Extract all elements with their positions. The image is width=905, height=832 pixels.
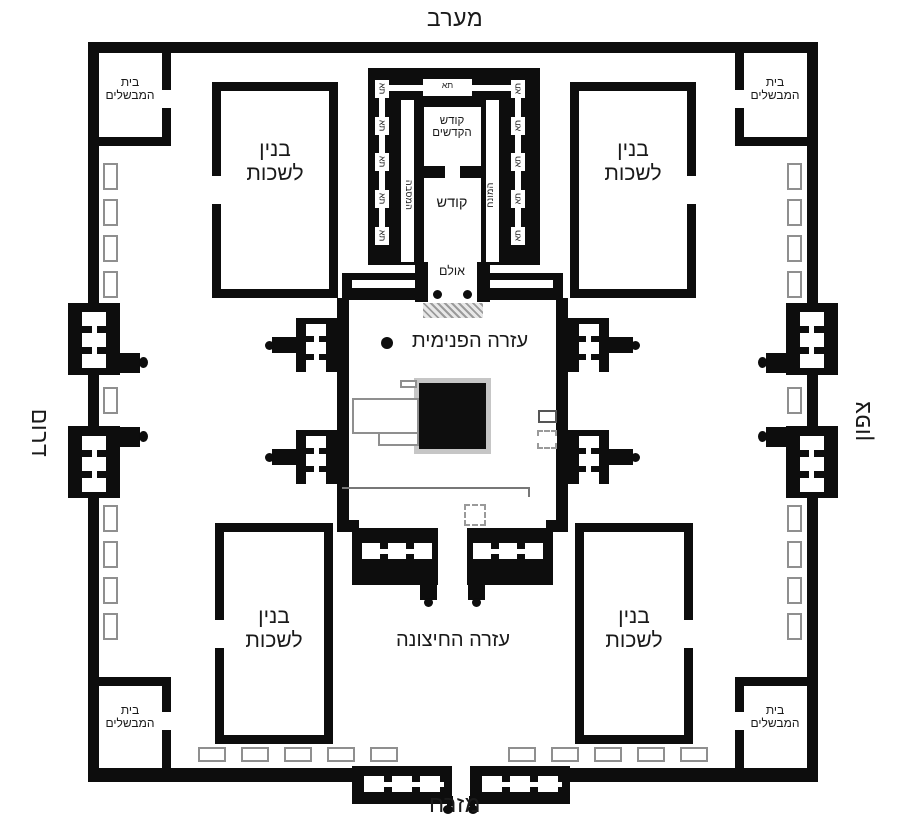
bld-sw-wall bbox=[215, 648, 224, 744]
wall-chamber bbox=[594, 747, 622, 762]
bld-nw-wall bbox=[329, 82, 338, 298]
porch-wing-slot bbox=[352, 280, 415, 288]
gate-passage bbox=[809, 316, 814, 368]
outer-wall-south bbox=[88, 42, 99, 782]
gate-knob bbox=[631, 453, 640, 462]
cook-nw-wall bbox=[99, 137, 171, 146]
wall-chamber bbox=[241, 747, 269, 762]
gate-knob bbox=[265, 453, 274, 462]
altar-ramp bbox=[352, 398, 419, 434]
wall-chamber bbox=[508, 747, 536, 762]
bld-se-wall bbox=[684, 648, 693, 744]
pillar bbox=[463, 290, 472, 299]
wall-chamber bbox=[103, 505, 118, 532]
outer-wall-west bbox=[88, 42, 818, 53]
cell-label: תא bbox=[513, 118, 522, 134]
wall-chamber bbox=[103, 235, 118, 262]
chambers-building-line1: בנין bbox=[574, 605, 694, 629]
court-marker bbox=[464, 504, 486, 526]
wall-chamber bbox=[787, 505, 802, 532]
cooking-house-line1: בית bbox=[745, 704, 805, 717]
bld-sw-wall bbox=[215, 523, 333, 532]
wall-chamber bbox=[787, 199, 802, 226]
bld-nw-wall bbox=[212, 289, 338, 298]
cell-label: תא bbox=[377, 228, 386, 244]
gate-knob bbox=[139, 357, 148, 368]
wall-chamber bbox=[787, 387, 802, 414]
inner-court-bullet bbox=[381, 337, 393, 349]
altar-ledge bbox=[400, 380, 417, 388]
wall-chamber bbox=[787, 163, 802, 190]
inner-court-wall bbox=[556, 484, 568, 532]
wall-chamber bbox=[787, 541, 802, 568]
bld-ne-wall bbox=[570, 289, 696, 298]
direction-north-label: צפון bbox=[850, 392, 876, 450]
outer-gate-foot bbox=[766, 353, 786, 373]
gate-passage bbox=[473, 549, 543, 554]
chambers-building-label-se: בנין לשכות bbox=[574, 605, 694, 653]
inner-gate-stub bbox=[272, 337, 296, 353]
pillar bbox=[433, 290, 442, 299]
bld-se-wall bbox=[575, 735, 693, 744]
holy-label: קודש bbox=[420, 196, 484, 212]
inner-gate-stub bbox=[609, 449, 633, 465]
bld-ne-wall bbox=[570, 82, 696, 91]
chambers-building-line1: בנין bbox=[215, 138, 335, 162]
altar bbox=[414, 378, 491, 454]
wall-chamber bbox=[103, 163, 118, 190]
wall-chamber bbox=[103, 577, 118, 604]
outer-gate-foot bbox=[120, 353, 140, 373]
gate-passage bbox=[314, 326, 319, 372]
holy-of-holies-line1: קודש bbox=[420, 115, 484, 127]
inner-gate-stub bbox=[272, 449, 296, 465]
gate-passage bbox=[362, 549, 432, 554]
chambers-building-line1: בנין bbox=[214, 605, 334, 629]
cell-label: תא bbox=[377, 81, 386, 97]
cooking-house-label-sw: בית המבשלים bbox=[100, 704, 160, 730]
cook-se-wall bbox=[735, 730, 744, 769]
chambers-building-line2: לשכות bbox=[573, 162, 693, 186]
sanctuary-steps bbox=[423, 303, 483, 318]
inner-court-wall bbox=[556, 372, 568, 430]
bld-nw-wall bbox=[212, 82, 338, 91]
cell-label: תא bbox=[377, 191, 386, 207]
wall-chamber bbox=[103, 199, 118, 226]
cooking-house-label-nw: בית המבשלים bbox=[100, 76, 160, 102]
bld-sw-wall bbox=[215, 735, 333, 744]
gate-knob bbox=[424, 598, 433, 607]
cook-sw-wall bbox=[162, 730, 171, 769]
gate-passage bbox=[809, 440, 814, 492]
outer-wall-north bbox=[807, 42, 818, 782]
cell-label-top: תא bbox=[423, 81, 472, 90]
wall-chamber bbox=[787, 271, 802, 298]
cooking-house-line2: המבשלים bbox=[745, 89, 805, 102]
gate-passage bbox=[586, 438, 591, 484]
court-divider-line bbox=[342, 487, 530, 489]
court-divider-line bbox=[528, 487, 530, 497]
cell-label: תא bbox=[513, 81, 522, 97]
cell-label: תא bbox=[513, 191, 522, 207]
wall-chamber bbox=[637, 747, 665, 762]
wall-chamber bbox=[787, 235, 802, 262]
wall-chamber bbox=[787, 613, 802, 640]
outer-court-label: עזרה החיצונה bbox=[373, 630, 533, 652]
cooking-house-label-se: בית המבשלים bbox=[745, 704, 805, 730]
gate-knob bbox=[139, 431, 148, 442]
wall-chamber bbox=[103, 271, 118, 298]
wall-chamber bbox=[198, 747, 226, 762]
cell-label: תא bbox=[513, 228, 522, 244]
wall-chamber bbox=[103, 613, 118, 640]
chambers-building-label-nw: בנין לשכות bbox=[215, 138, 335, 186]
winding-passage-label: המסבה bbox=[401, 165, 413, 225]
inner-court-label: עזרה הפנימית bbox=[395, 331, 545, 353]
outer-gate-foot bbox=[120, 427, 140, 447]
cell-label: תא bbox=[377, 154, 386, 170]
cooking-house-line1: בית bbox=[100, 76, 160, 89]
chambers-building-line2: לשכות bbox=[215, 162, 335, 186]
gate-passage bbox=[586, 326, 591, 372]
laver bbox=[538, 410, 557, 423]
wall-chamber bbox=[370, 747, 398, 762]
inner-gate-stub bbox=[609, 337, 633, 353]
direction-west-label: מערב bbox=[400, 6, 510, 31]
chambers-building-line2: לשכות bbox=[574, 629, 694, 653]
cooking-house-line1: בית bbox=[745, 76, 805, 89]
free-space-label: המונח bbox=[486, 165, 498, 225]
cook-sw-wall bbox=[99, 677, 171, 686]
wall-chamber bbox=[103, 387, 118, 414]
bld-ne-wall bbox=[687, 204, 696, 298]
cooking-house-line2: המבשלים bbox=[100, 89, 160, 102]
cooking-house-line2: המבשלים bbox=[745, 717, 805, 730]
gate-knob bbox=[758, 357, 767, 368]
gate-knob bbox=[265, 341, 274, 350]
gate-knob bbox=[631, 341, 640, 350]
wall-chamber bbox=[787, 577, 802, 604]
gate-passage bbox=[314, 438, 319, 484]
bld-se-wall bbox=[575, 523, 693, 532]
wall-chamber bbox=[680, 747, 708, 762]
gate-knob bbox=[472, 598, 481, 607]
inner-court-wall bbox=[337, 484, 349, 532]
gate-passage bbox=[368, 782, 444, 787]
bld-ne-wall bbox=[570, 82, 579, 298]
cook-nw-wall bbox=[162, 53, 171, 90]
bld-nw-wall bbox=[212, 204, 221, 298]
outer-gate-foot bbox=[766, 427, 786, 447]
gate-knob bbox=[758, 431, 767, 442]
inner-court-wall bbox=[337, 298, 349, 320]
cook-se-wall bbox=[735, 677, 807, 686]
temple-floor-plan: מערב מזרח דרום צפון בית המבשלים בית המבש… bbox=[0, 0, 905, 832]
wall-chamber bbox=[103, 541, 118, 568]
altar-ramp-step bbox=[378, 432, 419, 446]
cell-label: תא bbox=[377, 118, 386, 134]
chambers-building-label-ne: בנין לשכות bbox=[573, 138, 693, 186]
wall-chamber bbox=[284, 747, 312, 762]
cell-label: תא bbox=[513, 154, 522, 170]
direction-south-label: דרום bbox=[26, 404, 52, 462]
cooking-house-line1: בית bbox=[100, 704, 160, 717]
gate-passage bbox=[486, 782, 562, 787]
chambers-building-line1: בנין bbox=[573, 138, 693, 162]
inner-court-wall bbox=[556, 298, 568, 320]
chambers-building-label-sw: בנין לשכות bbox=[214, 605, 334, 653]
porch-label: אולם bbox=[424, 265, 480, 279]
cook-ne-wall bbox=[735, 53, 744, 90]
cooking-house-line2: המבשלים bbox=[100, 717, 160, 730]
wall-chamber bbox=[551, 747, 579, 762]
gate-passage bbox=[92, 440, 97, 492]
direction-east-label: מזרח bbox=[400, 792, 510, 817]
inner-court-wall bbox=[337, 372, 349, 430]
chambers-building-line2: לשכות bbox=[214, 629, 334, 653]
cook-ne-wall bbox=[735, 137, 807, 146]
gate-passage bbox=[92, 316, 97, 368]
holy-of-holies-line2: הקדשים bbox=[420, 127, 484, 139]
porch-wing-slot bbox=[490, 280, 553, 288]
holy-of-holies-label: קודש הקדשים bbox=[420, 115, 484, 140]
cooking-house-label-ne: בית המבשלים bbox=[745, 76, 805, 102]
laver-outline bbox=[537, 430, 557, 449]
wall-chamber bbox=[327, 747, 355, 762]
holy-room bbox=[424, 178, 481, 262]
